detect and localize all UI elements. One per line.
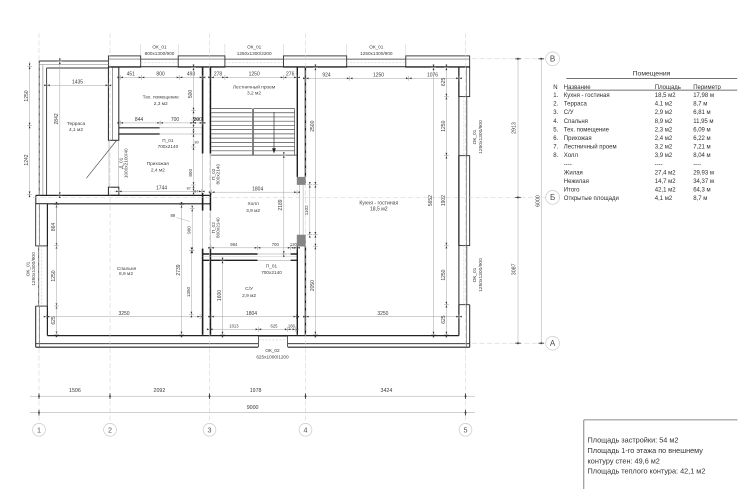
svg-text:625: 625 [441,78,447,87]
svg-text:800: 800 [156,72,165,78]
svg-text:4.: 4. [553,119,558,125]
svg-text:166: 166 [288,324,296,329]
svg-text:87: 87 [194,189,198,193]
svg-text:800х2140: 800х2140 [216,164,221,185]
svg-text:80: 80 [194,140,198,144]
svg-text:Холл: Холл [247,201,259,207]
svg-text:Терраса: Терраса [67,121,86,127]
svg-text:451: 451 [127,72,136,78]
svg-text:Площадь теплого контура: 42,1: Площадь теплого контура: 42,1 м2 [588,467,706,476]
svg-text:700х2140: 700х2140 [158,144,179,149]
svg-text:С/У: С/У [564,110,574,116]
svg-text:ОК_01: ОК_01 [25,261,31,276]
svg-text:1250: 1250 [51,270,57,281]
svg-text:Площадь застройки: 54 м2: Площадь застройки: 54 м2 [588,436,679,445]
svg-text:625: 625 [51,316,57,325]
svg-text:5.: 5. [553,127,558,133]
svg-text:1600: 1600 [217,290,223,301]
svg-text:3,2 м2: 3,2 м2 [655,145,673,151]
svg-text:1350: 1350 [186,286,191,297]
svg-text:42,1 м2: 42,1 м2 [655,188,676,194]
svg-text:2739: 2739 [176,264,182,275]
svg-text:Помещения: Помещения [633,71,671,78]
svg-text:2,9 м2: 2,9 м2 [655,110,673,116]
svg-text:5652: 5652 [428,195,434,206]
svg-text:контуру стен: 49,6 м2: контуру стен: 49,6 м2 [588,456,660,465]
svg-text:ОК_01: ОК_01 [369,44,384,49]
svg-text:8,9 м2: 8,9 м2 [655,119,673,125]
svg-text:800х1300/900: 800х1300/900 [145,51,175,56]
svg-text:3424: 3424 [381,388,393,394]
svg-text:29,93 м: 29,93 м [693,170,714,176]
svg-text:3: 3 [208,425,212,434]
svg-text:700: 700 [272,242,280,247]
svg-text:11,95 м: 11,95 м [693,119,713,125]
svg-text:2913: 2913 [511,122,517,134]
svg-text:1250х1300/2200: 1250х1300/2200 [237,51,272,56]
svg-text:700х2140: 700х2140 [261,270,282,275]
svg-text:Спальня: Спальня [564,119,588,125]
svg-text:Тех. помещение: Тех. помещение [564,127,610,133]
svg-text:Прихожая: Прихожая [564,136,592,142]
svg-text:1250х1300/900: 1250х1300/900 [360,51,393,56]
svg-text:864: 864 [51,223,57,232]
svg-text:ОК_02: ОК_02 [265,348,280,353]
svg-text:1978: 1978 [250,388,262,394]
svg-text:2,4 м2: 2,4 м2 [151,168,165,174]
svg-text:6,81 м: 6,81 м [693,110,710,116]
svg-text:2,4 м2: 2,4 м2 [655,136,673,142]
svg-text:2,3 м2: 2,3 м2 [655,127,673,133]
svg-text:984: 984 [230,242,238,247]
svg-text:----: ---- [655,162,663,168]
svg-text:1.: 1. [553,93,558,99]
svg-text:924: 924 [322,73,331,79]
svg-text:П_01: П_01 [162,138,174,143]
svg-text:1744: 1744 [156,186,167,192]
svg-text:1013: 1013 [229,324,239,329]
svg-text:9000: 9000 [247,405,259,411]
svg-text:8,04 м: 8,04 м [693,153,710,159]
svg-text:493: 493 [187,72,196,78]
svg-text:6000: 6000 [536,195,542,207]
svg-text:6,09 м: 6,09 м [693,127,710,133]
svg-text:Терраса: Терраса [564,102,588,108]
svg-text:3087: 3087 [511,263,517,275]
svg-text:120: 120 [290,242,298,247]
svg-text:Итого: Итого [564,188,580,194]
svg-text:200: 200 [194,118,200,122]
svg-text:14,7 м2: 14,7 м2 [655,179,676,185]
svg-text:89: 89 [170,213,175,218]
svg-text:8.: 8. [553,153,558,159]
svg-text:625: 625 [271,324,279,329]
svg-text:ОК_01: ОК_01 [152,44,167,49]
svg-text:1250: 1250 [441,120,447,131]
svg-text:Лестничный проем: Лестничный проем [564,144,617,151]
svg-text:2,3 м2: 2,3 м2 [154,101,168,107]
svg-text:27,4 м2: 27,4 м2 [655,170,676,176]
svg-text:900: 900 [187,226,192,234]
svg-text:625: 625 [441,315,447,324]
svg-text:6.: 6. [553,136,558,142]
svg-text:1250: 1250 [249,72,260,78]
svg-text:1: 1 [37,425,41,434]
svg-text:17,98 м: 17,98 м [693,93,714,99]
svg-text:Холл: Холл [564,153,579,159]
svg-text:700: 700 [171,117,180,123]
svg-text:2500: 2500 [310,120,316,131]
svg-text:В: В [550,54,555,63]
svg-text:3,2 м2: 3,2 м2 [247,91,261,97]
svg-text:----: ---- [564,162,572,168]
svg-text:8,7 м: 8,7 м [693,196,707,202]
svg-text:4,1 м2: 4,1 м2 [655,196,673,202]
svg-text:4,1 м2: 4,1 м2 [655,102,673,108]
svg-text:1250: 1250 [373,73,384,79]
svg-text:18,5 м2: 18,5 м2 [655,93,676,99]
svg-text:18,5 м2: 18,5 м2 [370,206,388,212]
svg-text:7,21 м: 7,21 м [693,145,710,151]
svg-text:1902: 1902 [441,195,447,206]
svg-text:Жилая: Жилая [564,170,583,176]
svg-text:Кухня - гостиная: Кухня - гостиная [564,93,610,99]
svg-text:87: 87 [187,187,191,191]
svg-text:1242: 1242 [24,154,30,165]
svg-text:625х1000/1200: 625х1000/1200 [256,355,289,360]
svg-text:N: N [553,85,557,91]
svg-text:ОК_01: ОК_01 [472,129,478,144]
svg-text:Нежилая: Нежилая [564,179,589,185]
svg-text:1804: 1804 [252,187,263,193]
svg-text:Б: Б [550,193,555,202]
svg-text:500: 500 [188,90,194,99]
svg-text:2092: 2092 [154,388,166,394]
svg-text:1250: 1250 [24,90,30,101]
svg-text:800х2140: 800х2140 [216,217,221,238]
svg-text:Прихожая: Прихожая [147,161,170,167]
svg-text:6,22 м: 6,22 м [693,136,710,142]
svg-text:2.: 2. [553,102,558,108]
svg-text:3.: 3. [553,110,558,116]
svg-text:4,1 м2: 4,1 м2 [69,127,83,133]
svg-text:8,9 м2: 8,9 м2 [119,271,133,277]
svg-text:8,7 м: 8,7 м [693,102,707,108]
svg-text:34,37 м: 34,37 м [693,179,714,185]
svg-text:Открытые площади: Открытые площади [564,196,619,202]
svg-text:1250х1300/900: 1250х1300/900 [478,120,484,154]
svg-text:2: 2 [108,425,112,434]
svg-text:ОК_01: ОК_01 [472,267,478,282]
svg-text:278: 278 [214,72,223,78]
svg-text:2050: 2050 [310,280,316,291]
svg-text:Тех. помещение: Тех. помещение [143,95,179,101]
svg-text:844: 844 [135,117,144,123]
svg-text:5: 5 [464,425,468,434]
svg-text:ОК_01: ОК_01 [247,44,262,49]
svg-text:1076: 1076 [427,73,438,79]
svg-text:1250: 1250 [441,269,447,280]
svg-text:276: 276 [286,72,295,78]
svg-text:Площадь 1-го этажа по внешнему: Площадь 1-го этажа по внешнему [588,446,704,455]
svg-text:Лестничный проем: Лестничный проем [233,84,275,91]
svg-text:----: ---- [693,162,701,168]
svg-text:3,9 м2: 3,9 м2 [246,208,260,214]
svg-text:2,9 м2: 2,9 м2 [242,293,256,299]
svg-text:1250х1300/900: 1250х1300/900 [31,252,37,286]
svg-text:1506: 1506 [69,388,81,394]
svg-text:1000х2100/40: 1000х2100/40 [124,148,129,178]
svg-text:3250: 3250 [377,311,388,317]
svg-text:А: А [550,339,556,348]
svg-text:3,9 м2: 3,9 м2 [655,153,673,159]
svg-text:4: 4 [304,425,308,434]
svg-text:П_01: П_01 [266,263,278,268]
svg-text:1804: 1804 [246,311,257,317]
svg-text:1435: 1435 [72,80,83,86]
svg-text:2189: 2189 [278,199,284,210]
svg-text:С/У: С/У [245,286,254,292]
svg-text:800: 800 [188,169,193,177]
svg-text:2842: 2842 [54,113,60,124]
svg-text:3250: 3250 [118,311,129,317]
svg-text:1102: 1102 [304,205,309,215]
svg-text:1250х1300/900: 1250х1300/900 [478,258,484,292]
svg-text:64,3 м: 64,3 м [693,188,710,194]
svg-text:7.: 7. [553,145,558,151]
